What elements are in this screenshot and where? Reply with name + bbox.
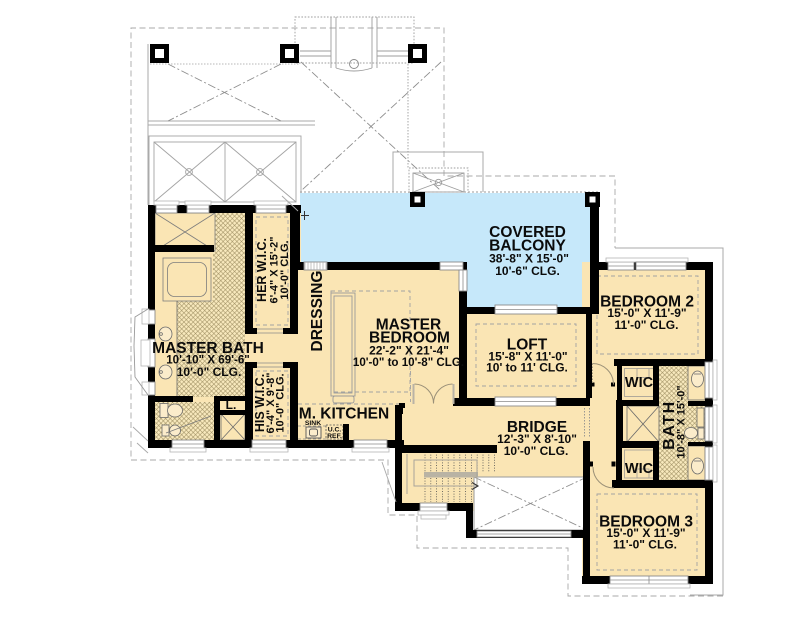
svg-text:HER W.I.C.: HER W.I.C. [255,238,269,302]
svg-text:11'-0" CLG.: 11'-0" CLG. [613,538,677,552]
svg-text:SINK: SINK [305,420,321,427]
svg-text:WIC: WIC [625,461,654,477]
svg-text:10' to 11' CLG.: 10' to 11' CLG. [486,361,568,375]
svg-text:WIC: WIC [625,375,654,391]
svg-text:10'-0" CLG.: 10'-0" CLG. [177,365,242,379]
svg-text:10'-0" CLG.: 10'-0" CLG. [275,373,287,432]
svg-text:10'-0" CLG.: 10'-0" CLG. [279,240,291,299]
svg-text:10'-0" to 10'-8" CLG.: 10'-0" to 10'-8" CLG. [353,356,464,369]
svg-text:DRESSING: DRESSING [309,271,326,352]
svg-text:10'-8" X 15'-0": 10'-8" X 15'-0" [676,385,688,458]
svg-text:10'-6" CLG.: 10'-6" CLG. [495,264,560,278]
svg-text:L.: L. [226,398,237,412]
svg-text:11'-0" CLG.: 11'-0" CLG. [615,318,679,332]
svg-text:REF.: REF. [327,433,342,440]
svg-text:10'-0" CLG.: 10'-0" CLG. [504,444,569,458]
